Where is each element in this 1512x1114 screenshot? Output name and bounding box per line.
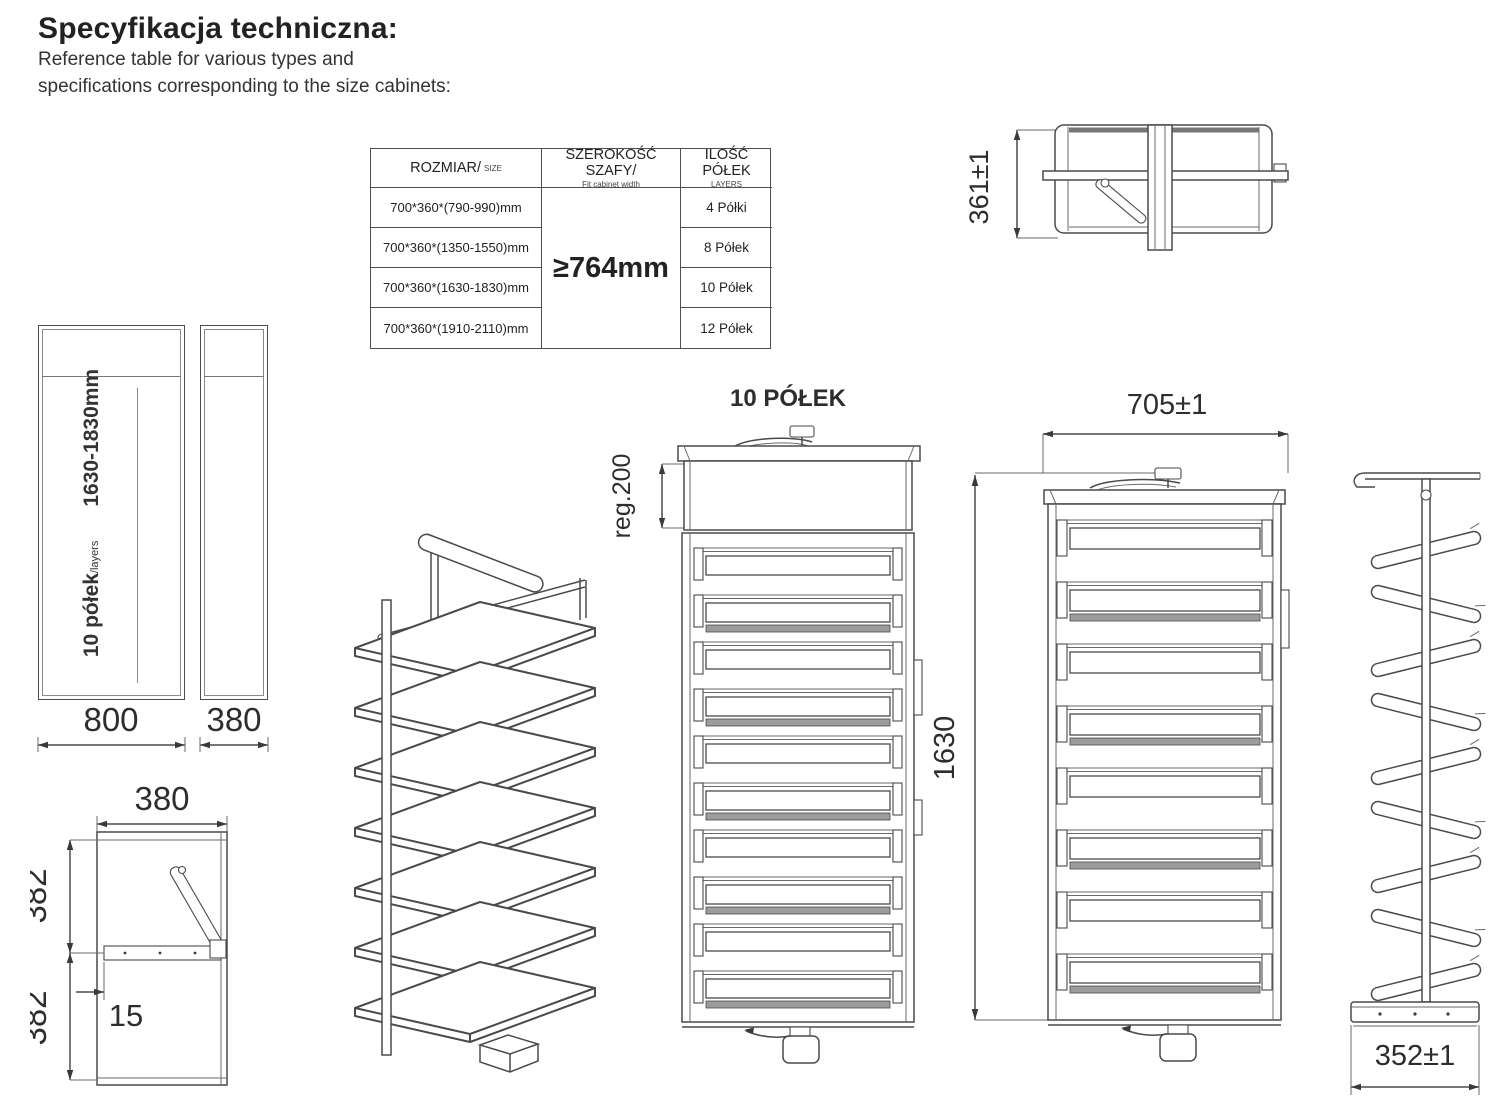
col-header-size: ROZMIAR/ SIZE <box>371 149 542 188</box>
cabinet-width-merged-cell: ≥764mm <box>542 188 681 348</box>
front-view-title: 10 PÓŁEK <box>730 384 847 412</box>
top-view-drawing: 361±1 <box>958 108 1298 268</box>
mount-body <box>97 832 228 1085</box>
table-row-size: 700*360*(790-990)mm <box>371 188 542 228</box>
dim-label-382-lower: 382 <box>30 990 53 1045</box>
dim-382-lower: 382 <box>30 953 97 1080</box>
cabinet-side-outline <box>200 325 268 700</box>
cabinet-front-outline: 10 półek/layers1630-1830mm <box>38 325 185 700</box>
front-view-pivot-foot <box>744 1027 819 1063</box>
table-row-size: 700*360*(1910-2110)mm <box>371 308 542 348</box>
spec-table: ROZMIAR/ SIZE SZEROKOŚĆ SZAFY/ Fit cabin… <box>370 148 771 349</box>
page-subtitle-line1: Reference table for various types and <box>38 46 451 73</box>
dim-382-upper: 382 <box>30 840 104 953</box>
title-block: Specyfikacja techniczna: Reference table… <box>38 12 451 100</box>
top-view-body <box>1043 125 1288 250</box>
side-view-pole <box>1421 479 1431 1002</box>
spec-sheet-page: Specyfikacja techniczna: Reference table… <box>0 0 1512 1114</box>
cabinet-front-center-line <box>137 388 138 683</box>
dim-label-1630: 1630 <box>930 716 961 781</box>
dim-label-15: 15 <box>109 998 143 1033</box>
cabinet-side-top-panel-line <box>204 376 264 377</box>
dim-label-352: 352±1 <box>1375 1040 1455 1072</box>
front-view2-cabinet <box>1044 490 1289 1025</box>
side-view-top-bar <box>1354 473 1480 487</box>
table-row-size: 700*360*(1630-1830)mm <box>371 268 542 308</box>
side-view-base <box>1351 1002 1479 1026</box>
isometric-view-drawing <box>330 470 620 1085</box>
dim-label-800: 800 <box>83 701 138 738</box>
dim-352: 352±1 <box>1351 1025 1479 1095</box>
dim-label-705: 705±1 <box>1127 389 1207 421</box>
dim-label-380: 380 <box>206 701 261 738</box>
dim-361: 361±1 <box>964 130 1058 238</box>
mount-top-view-drawing: 380 382 382 <box>30 770 250 1105</box>
dim-reg200: reg.200 <box>608 454 684 539</box>
dim-label-361: 361±1 <box>964 150 994 225</box>
col-header-shelf-count: ILOŚĆ PÓŁEK LAYERS <box>681 149 772 188</box>
page-title: Specyfikacja techniczna: <box>38 12 451 46</box>
table-row-shelves: 10 Półek <box>681 268 772 308</box>
dim-705: 705±1 <box>1043 389 1288 473</box>
front-view2-handle <box>1090 468 1181 492</box>
front-view2-pivot-foot <box>1121 1025 1196 1061</box>
cabinet-front-inner-border <box>42 329 181 696</box>
dim-label-reg200: reg.200 <box>608 454 636 539</box>
table-row-size: 700*360*(1350-1550)mm <box>371 228 542 268</box>
iso-base-foot <box>480 1035 538 1072</box>
cabinet-front-label: 10 półek/layers1630-1830mm <box>79 368 103 656</box>
cabinet-front-top-panel-line <box>42 376 181 377</box>
iso-frame-post <box>382 600 391 1055</box>
table-row-shelves: 4 Półki <box>681 188 772 228</box>
dim-label-382-upper: 382 <box>30 868 53 923</box>
dim-label-mount-380: 380 <box>134 780 189 817</box>
side-view-drawing: 352±1 <box>1335 455 1511 1110</box>
table-row-shelves: 8 Półek <box>681 228 772 268</box>
cabinet-side-inner-border <box>204 329 264 696</box>
table-row-shelves: 12 Półek <box>681 308 772 348</box>
page-subtitle-line2: specifications corresponding to the size… <box>38 73 451 100</box>
front-view-dimensioned-drawing: 705±1 1630 <box>930 380 1310 1080</box>
col-header-cabinet-width: SZEROKOŚĆ SZAFY/ Fit cabinet width <box>542 149 681 188</box>
cabinet-width-dims: 800 380 <box>30 697 280 753</box>
front-view-10-shelves-drawing: 10 PÓŁEK reg.200 <box>600 380 960 1080</box>
